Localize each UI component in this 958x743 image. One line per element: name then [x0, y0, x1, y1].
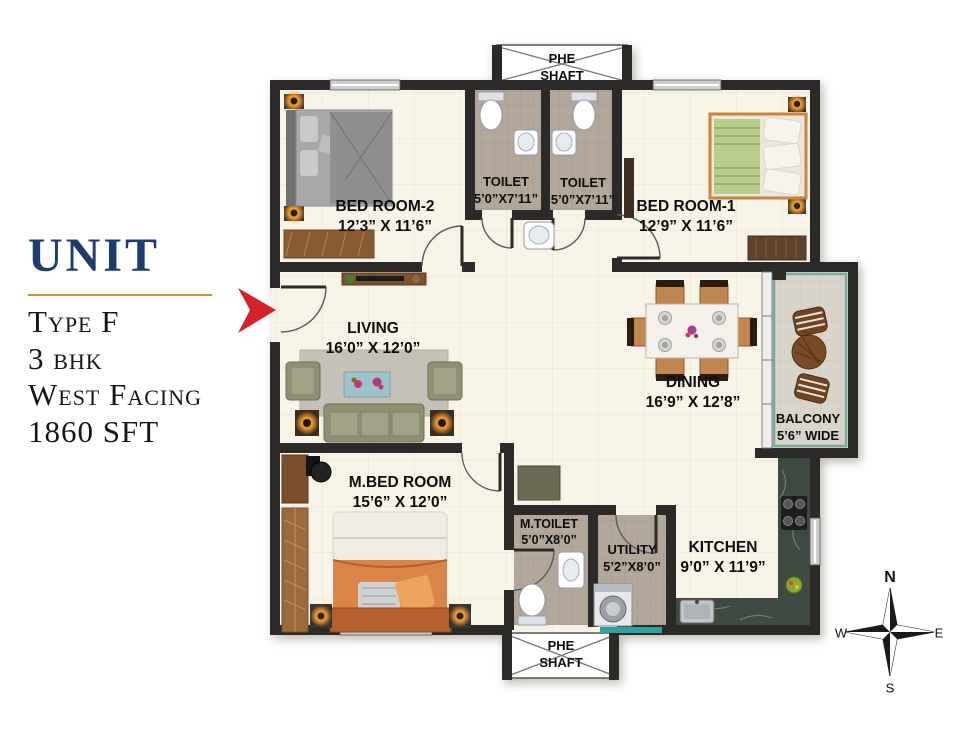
compass-north: N: [884, 569, 896, 587]
floorplan-graphic: [0, 0, 958, 743]
label-dining: DINING16’9” X 12’8”: [646, 373, 741, 413]
label-bedroom2: BED ROOM-212’3” X 11’6”: [335, 197, 434, 237]
compass-west: W: [835, 626, 847, 641]
label-bedroom1: BED ROOM-112’9” X 11’6”: [636, 197, 735, 237]
compass-east: E: [935, 626, 944, 641]
label-living: LIVING16’0” X 12’0”: [326, 319, 421, 359]
label-master-toilet: M.TOILET5’0”X8’0”: [520, 516, 578, 549]
label-toilet-right: TOILET5’0”X7’11”: [551, 175, 615, 209]
label-toilet-left: TOILET5’0”X7’11”: [474, 174, 538, 208]
label-balcony: BALCONY5’6” WIDE: [776, 411, 840, 445]
entrance-arrow: [238, 288, 276, 333]
label-master-bedroom: M.BED ROOM15’6” X 12’0”: [349, 473, 451, 513]
label-phe-shaft-bottom: PHESHAFT: [539, 638, 582, 672]
furniture-balcony: [792, 306, 831, 405]
floorplan-page: UNIT Type F 3 bhk West Facing 1860 SFT: [0, 0, 958, 743]
label-utility: UTILITY5’2”X8’0”: [603, 542, 661, 576]
furniture-living: [286, 350, 462, 442]
label-kitchen: KITCHEN9’0” X 11’9”: [680, 538, 765, 578]
compass-south: S: [886, 681, 895, 696]
compass-rose: [846, 588, 934, 676]
balcony-slider: [762, 272, 772, 448]
label-phe-shaft-top: PHESHAFT: [540, 51, 583, 85]
